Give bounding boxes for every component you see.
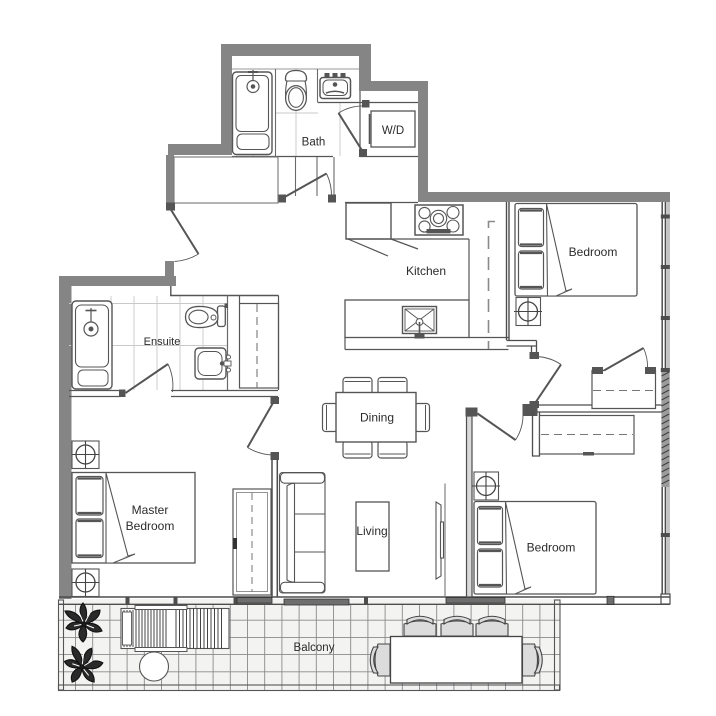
svg-text:Master: Master	[132, 503, 169, 517]
svg-text:Living: Living	[356, 524, 387, 538]
svg-text:Kitchen: Kitchen	[406, 264, 446, 278]
svg-text:Dining: Dining	[360, 411, 394, 425]
svg-text:Ensuite: Ensuite	[144, 336, 181, 348]
svg-text:W/D: W/D	[382, 125, 404, 137]
svg-text:Bath: Bath	[302, 137, 326, 149]
svg-text:Bedroom: Bedroom	[569, 245, 618, 259]
svg-text:Bedroom: Bedroom	[126, 519, 175, 533]
svg-text:Balcony: Balcony	[294, 642, 335, 654]
svg-text:Bedroom: Bedroom	[527, 541, 576, 555]
